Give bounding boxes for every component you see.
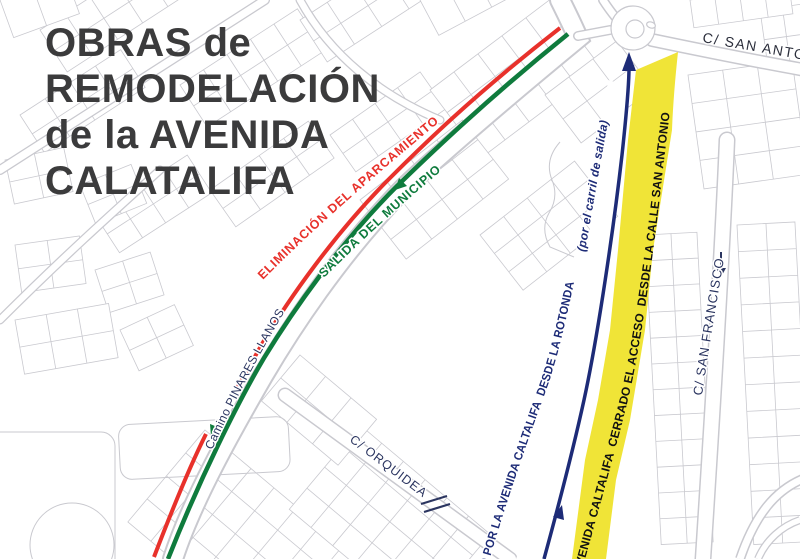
roadworks-map-poster: Camino PINARES LLANOS C/ ORQUIDEA C/ SAN… <box>0 0 800 559</box>
poster-title: OBRAS de REMODELACIÓN de la AVENIDA CALA… <box>45 20 380 204</box>
